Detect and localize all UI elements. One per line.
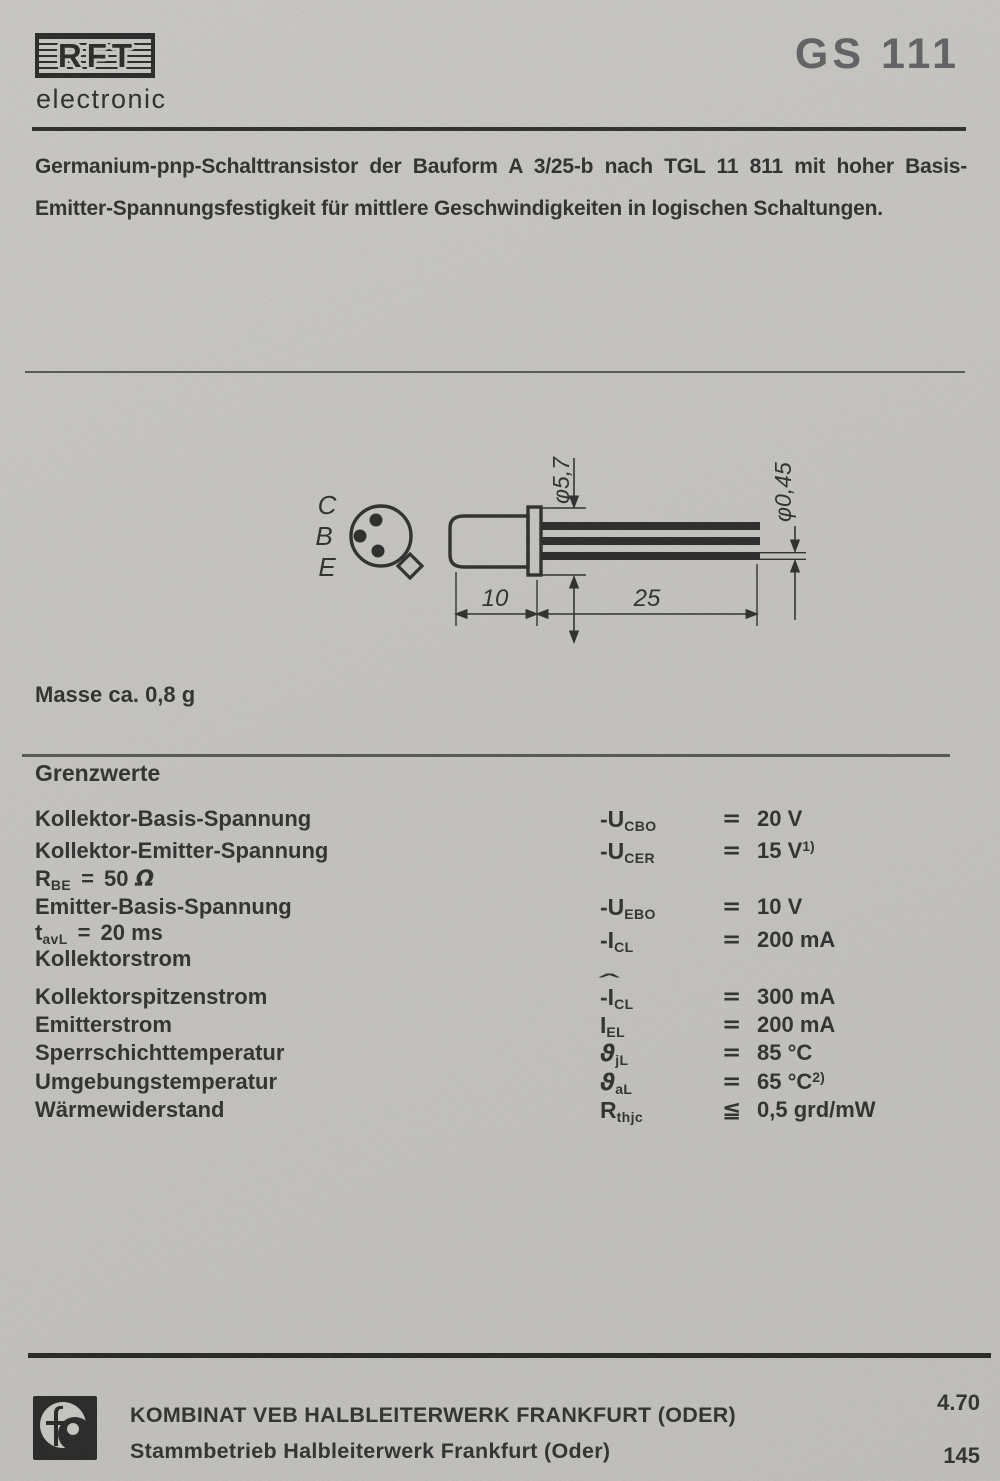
limit-relation: =: [722, 1012, 741, 1038]
limits-rule: [22, 754, 950, 757]
pin-label-b: B: [315, 521, 332, 551]
limit-row: Sperrschichttemperatur ϑjL = 85 °C: [35, 1040, 970, 1072]
limit-row: Wärmewiderstand Rthjc ≦ 0,5 grd/mW: [35, 1097, 970, 1129]
rft-logo: RFT: [35, 33, 155, 78]
section-rule: [25, 371, 965, 373]
lead-emitter: [541, 552, 760, 560]
pin-label-c: C: [318, 490, 337, 520]
pin-label-e: E: [318, 552, 336, 582]
limit-relation: =: [722, 1069, 741, 1095]
dim-label-lead-length: 25: [633, 585, 661, 612]
limit-label: Umgebungstemperatur: [35, 1069, 277, 1094]
datasheet-page: RFT electronic GS 111 Germanium-pnp-Scha…: [0, 0, 1000, 1481]
limit-symbol: -UCBO: [600, 806, 657, 834]
limit-value: 300 mA: [757, 984, 835, 1010]
pin-dot-collector: [370, 514, 383, 527]
lead-collector: [541, 522, 760, 530]
limit-value: 20 V: [757, 806, 802, 832]
limit-value: 85 °C: [757, 1040, 812, 1066]
limit-relation: =: [722, 984, 741, 1010]
limit-row: Kollektorstrom: [35, 946, 970, 978]
limit-value: 200 mA: [757, 1012, 835, 1038]
limit-value: 65 °C2): [757, 1069, 825, 1095]
description: Germanium-pnp-Schalttransistor der Baufo…: [35, 146, 967, 230]
transistor-body: [450, 516, 528, 567]
mass-note: Masse ca. 0,8 g: [35, 682, 195, 708]
limit-symbol: IEL: [600, 1012, 625, 1040]
description-line-1: Germanium-pnp-Schalttransistor der Baufo…: [35, 146, 967, 188]
limit-row: Kollektor-Basis-Spannung -UCBO = 20 V: [35, 806, 970, 838]
dim-label-lead-diameter: φ0,45: [770, 462, 796, 522]
transistor-flange: [528, 507, 541, 575]
limit-label: Emitter-Basis-Spannung: [35, 894, 292, 919]
limit-label: Wärmewiderstand: [35, 1097, 225, 1122]
limit-symbol: ˆ-ICL: [600, 984, 634, 1012]
peak-hat: ˆ: [599, 969, 620, 1001]
limit-label: Kollektorspitzenstrom: [35, 984, 267, 1009]
footer-line-1: KOMBINAT VEB HALBLEITERWERK FRANKFURT (O…: [130, 1403, 736, 1428]
pin-dot-emitter: [372, 545, 385, 558]
limit-symbol: ϑjL: [600, 1040, 628, 1068]
limit-symbol: Rthjc: [600, 1097, 643, 1125]
limit-label: Sperrschichttemperatur: [35, 1040, 284, 1065]
lead-base: [541, 537, 760, 545]
footer-rule: [28, 1353, 991, 1358]
rft-logo-text: RFT: [53, 37, 137, 75]
date-code: 4.70: [880, 1390, 980, 1416]
limit-relation: =: [722, 806, 741, 832]
header-rule: [32, 127, 966, 131]
side-view: [450, 507, 806, 575]
limit-relation: ≦: [722, 1097, 741, 1123]
footer-line-2: Stammbetrieb Halbleiterwerk Frankfurt (O…: [130, 1439, 610, 1464]
limit-value: 0,5 grd/mW: [757, 1097, 876, 1123]
condition-label: tavL=20 ms: [35, 920, 163, 945]
condition-label: RBE=50Ω: [35, 866, 154, 891]
limit-symbol: -UEBO: [600, 894, 656, 922]
limit-relation: =: [722, 894, 741, 920]
pin-dot-base: [354, 530, 367, 543]
limit-symbol: -UCER: [600, 838, 655, 866]
limit-label: Kollektor-Basis-Spannung: [35, 806, 311, 831]
limit-relation: =: [722, 838, 741, 864]
limit-value: 10 V: [757, 894, 802, 920]
dim-lead-diameter: φ0,45: [770, 462, 796, 620]
dim-label-body-diameter: φ5,7: [548, 456, 574, 504]
product-code: GS 111: [620, 30, 960, 79]
transistor-outline-drawing: C B E φ5,7 φ0,45: [290, 430, 860, 650]
limit-value: 15 V1): [757, 838, 815, 864]
dim-label-body-length: 10: [482, 585, 509, 612]
dim-lengths: 10 25: [456, 564, 757, 626]
manufacturer-logo: [33, 1396, 97, 1460]
limits-heading: Grenzwerte: [35, 760, 160, 787]
limit-symbol: ϑaL: [600, 1069, 632, 1097]
limit-relation: =: [722, 1040, 741, 1066]
limit-label: Kollektor-Emitter-Spannung: [35, 838, 328, 863]
pin-view: C B E: [315, 490, 422, 582]
page-number: 145: [880, 1443, 980, 1469]
brand-subtext: electronic: [36, 84, 167, 115]
description-line-2: Emitter-Spannungsfestigkeit für mittlere…: [35, 188, 967, 230]
limit-label: Kollektorstrom: [35, 946, 191, 971]
limit-label: Emitterstrom: [35, 1012, 172, 1037]
